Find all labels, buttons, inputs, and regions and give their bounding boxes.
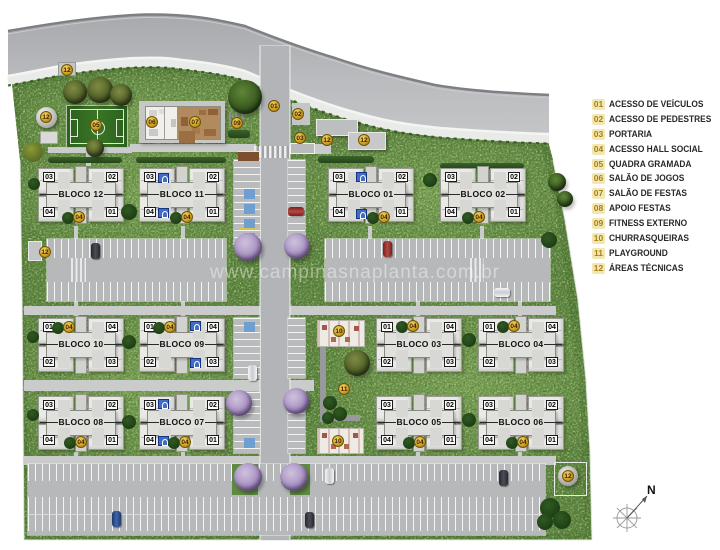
svg-text:N: N xyxy=(647,483,656,497)
